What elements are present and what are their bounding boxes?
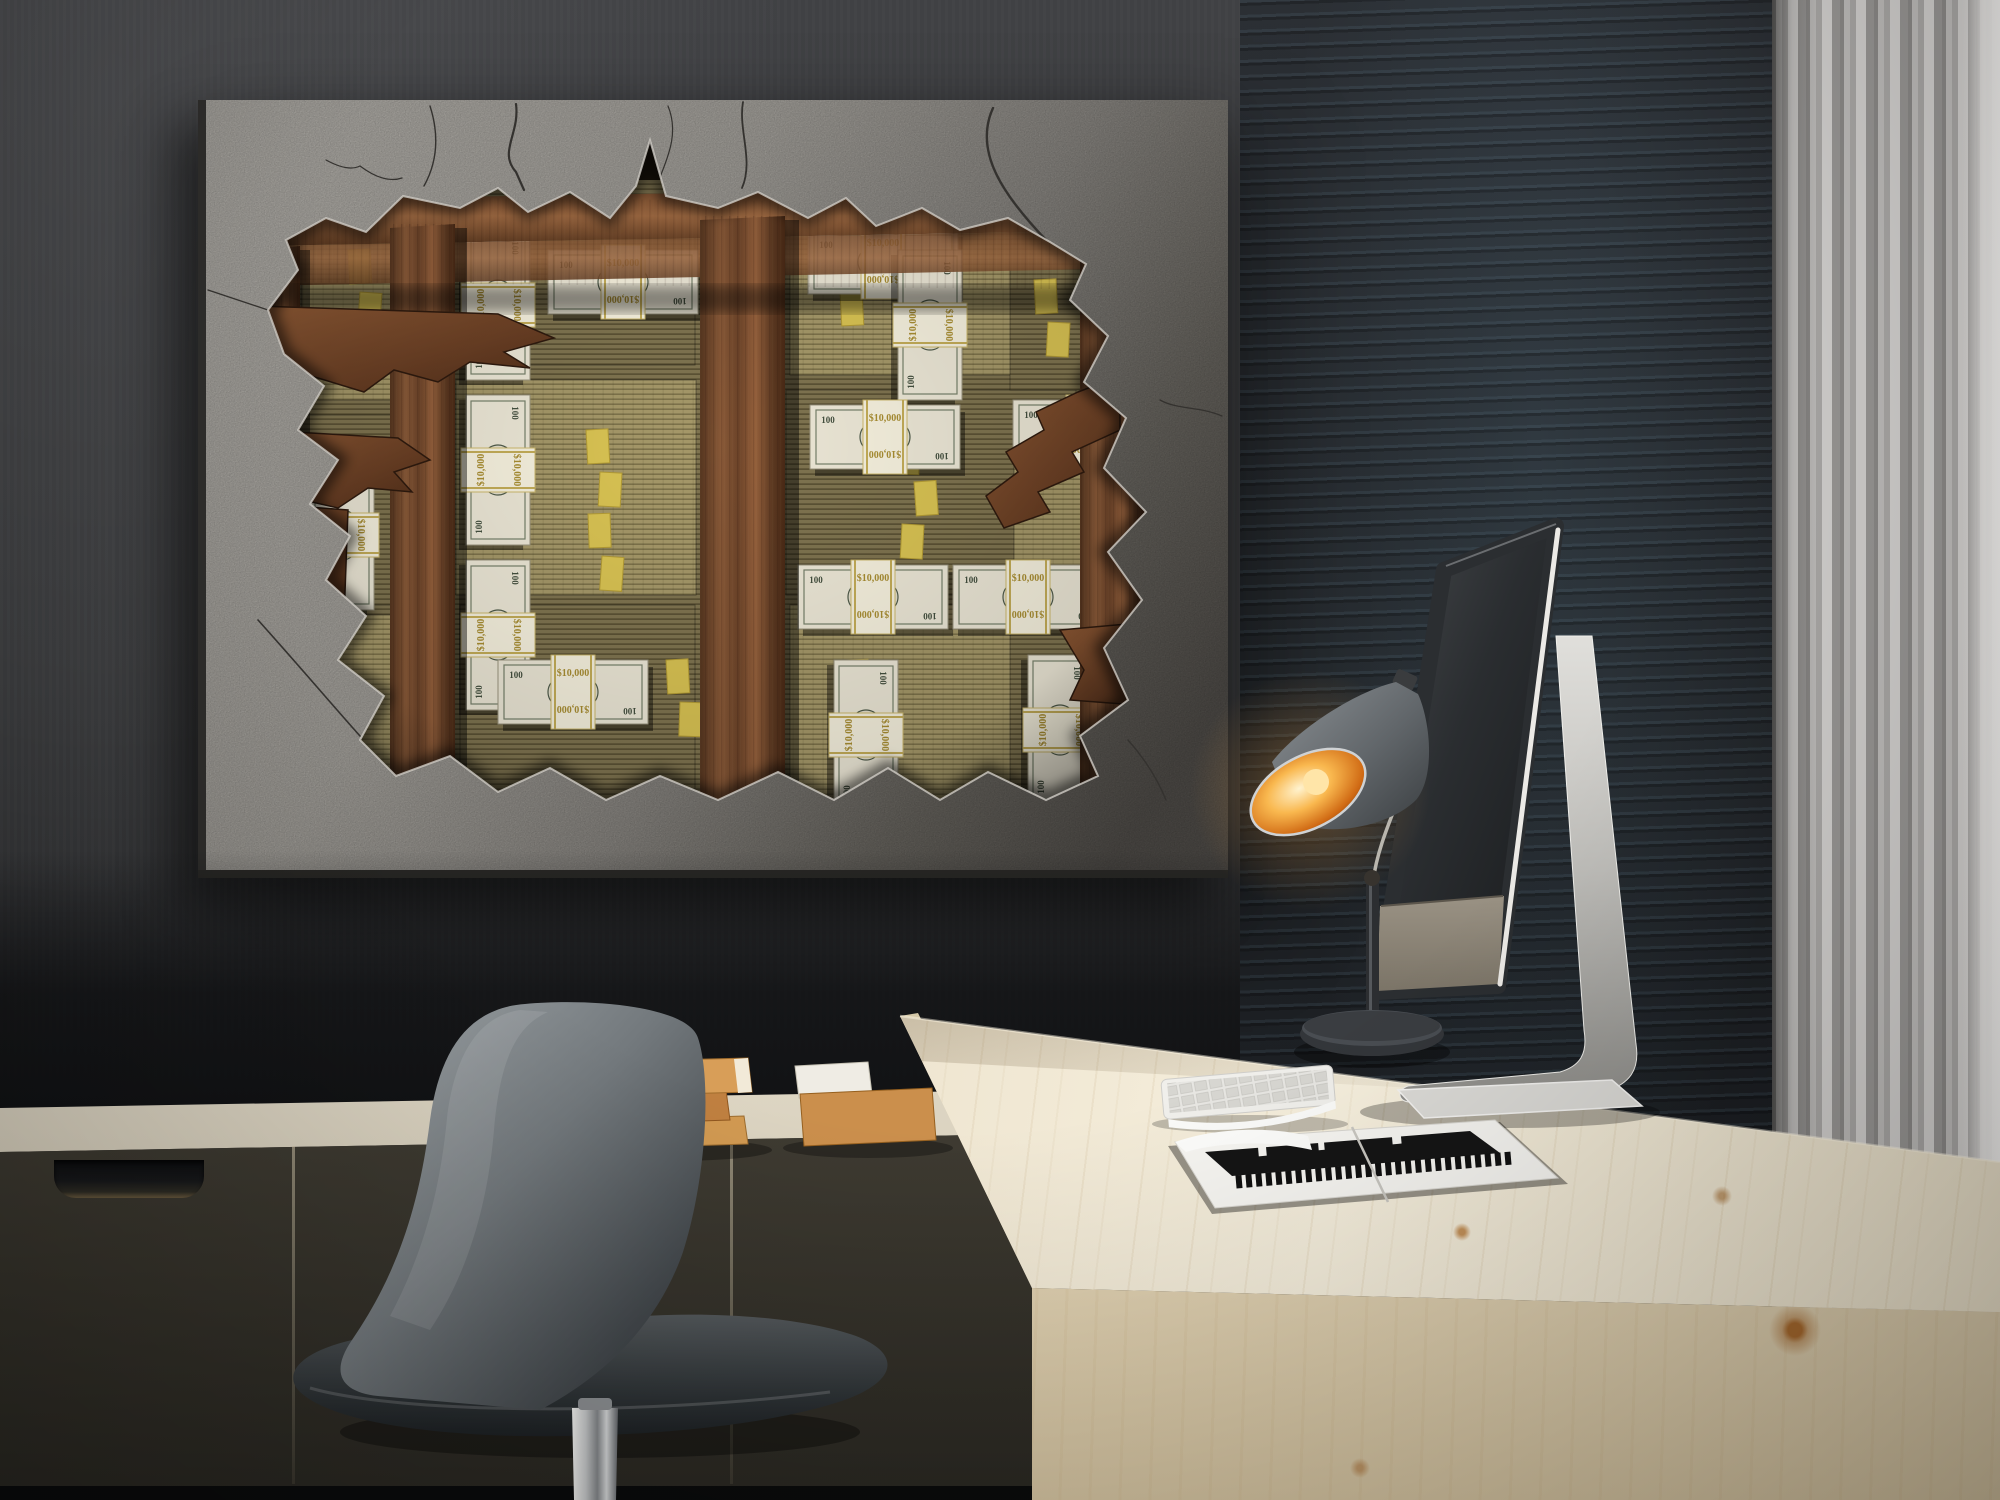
drawer-seam — [730, 1140, 733, 1484]
drawer-handle[interactable] — [54, 1160, 204, 1198]
wall-art-canvas: 100 100 $10,000 $10,000 — [198, 100, 1228, 878]
money-hole-artwork: 100 100 $10,000 $10,000 — [198, 100, 1228, 878]
drawer-handle[interactable] — [500, 1150, 618, 1184]
drawer-seam — [292, 1146, 295, 1484]
floor-shadow — [0, 1486, 1032, 1500]
office-scene: 100 100 $10,000 $10,000 — [0, 0, 2000, 1500]
